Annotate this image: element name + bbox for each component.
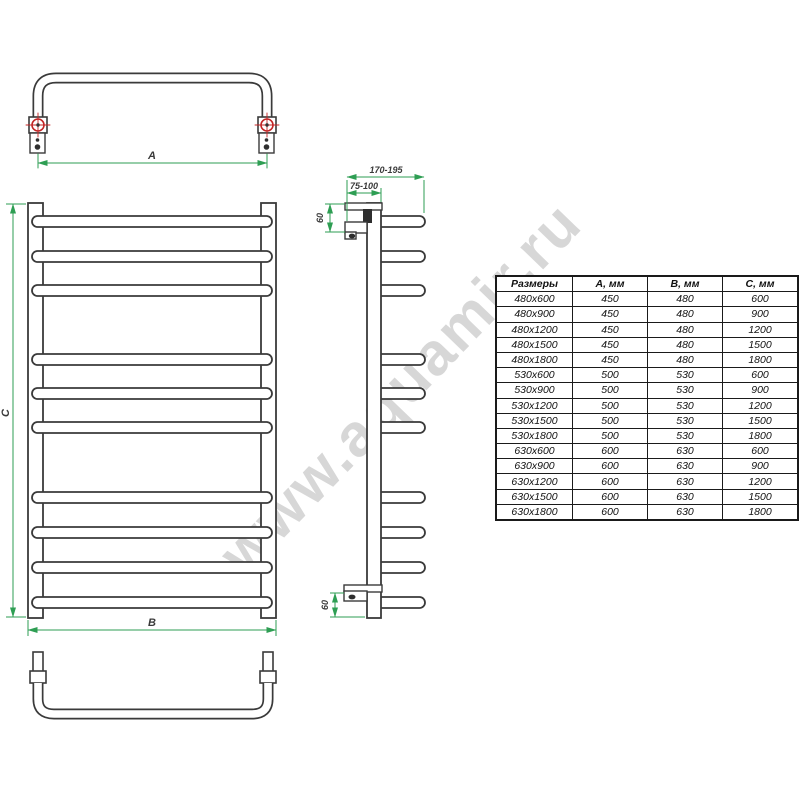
table-cell: 450: [573, 292, 648, 307]
table-cell: 600: [573, 474, 648, 489]
table-cell: 630x1500: [496, 489, 573, 504]
table-cell: 600: [573, 504, 648, 520]
table-cell: 900: [723, 383, 799, 398]
top-view-tube-fill: [38, 78, 267, 120]
table-cell: 630x600: [496, 444, 573, 459]
dimension-C-label: C: [0, 408, 12, 417]
table-cell: 530: [648, 383, 723, 398]
bottom-view-tube-outline: [38, 683, 268, 714]
table-cell: 630: [648, 474, 723, 489]
front-rung: [32, 492, 272, 503]
table-cell: 480x1800: [496, 352, 573, 367]
side-bottom-bracket-screw: [349, 595, 356, 600]
front-rung: [32, 562, 272, 573]
table-cell: 1800: [723, 504, 799, 520]
keyhole-plate-right: [259, 133, 274, 153]
size-table-header-row: Размеры А, мм В, мм С, мм: [496, 276, 798, 292]
table-row: 630x15006006301500: [496, 489, 798, 504]
bottom-collar-left: [30, 671, 46, 683]
side-bottom-bracket: [344, 591, 367, 601]
header-c-mm: С, мм: [723, 276, 799, 292]
table-row: 530x15005005301500: [496, 413, 798, 428]
side-top-bracket-screw: [349, 234, 355, 239]
keyhole-plate-left: [30, 133, 45, 153]
table-cell: 500: [573, 383, 648, 398]
size-table: Размеры А, мм В, мм С, мм 480x6004504806…: [495, 275, 799, 521]
header-b-mm: В, мм: [648, 276, 723, 292]
table-row: 530x18005005301800: [496, 428, 798, 443]
front-rung: [32, 354, 272, 365]
table-cell: 500: [573, 368, 648, 383]
table-cell: 530x1800: [496, 428, 573, 443]
table-cell: 600: [573, 444, 648, 459]
table-cell: 530: [648, 413, 723, 428]
size-table-container: Размеры А, мм В, мм С, мм 480x6004504806…: [495, 275, 799, 521]
table-cell: 600: [723, 444, 799, 459]
table-cell: 450: [573, 352, 648, 367]
size-table-body: 480x600450480600480x900450480900480x1200…: [496, 292, 798, 520]
front-rung: [32, 285, 272, 296]
table-cell: 1200: [723, 474, 799, 489]
table-cell: 1500: [723, 413, 799, 428]
table-cell: 480x600: [496, 292, 573, 307]
table-cell: 630: [648, 459, 723, 474]
table-row: 630x600600630600: [496, 444, 798, 459]
table-cell: 630x1800: [496, 504, 573, 520]
table-row: 530x12005005301200: [496, 398, 798, 413]
table-cell: 1200: [723, 398, 799, 413]
table-row: 630x18006006301800: [496, 504, 798, 520]
table-cell: 480: [648, 307, 723, 322]
table-row: 530x900500530900: [496, 383, 798, 398]
dimension-depth-range-label: 170-195: [369, 165, 403, 175]
table-cell: 630: [648, 504, 723, 520]
table-cell: 480x1200: [496, 322, 573, 337]
table-cell: 630: [648, 489, 723, 504]
table-cell: 600: [723, 292, 799, 307]
dimension-B-label: B: [148, 617, 156, 629]
table-cell: 500: [573, 398, 648, 413]
table-row: 480x15004504801500: [496, 337, 798, 352]
table-cell: 480: [648, 337, 723, 352]
table-cell: 480x900: [496, 307, 573, 322]
size-table-head: Размеры А, мм В, мм С, мм: [496, 276, 798, 292]
table-row: 480x18004504801800: [496, 352, 798, 367]
bottom-view: [30, 652, 276, 714]
table-cell: 530x900: [496, 383, 573, 398]
front-rung: [32, 422, 272, 433]
side-pipe: [367, 203, 381, 618]
table-row: 530x600500530600: [496, 368, 798, 383]
table-cell: 530x600: [496, 368, 573, 383]
dimension-bracket-range-label: 75-100: [350, 181, 378, 191]
table-cell: 480: [648, 292, 723, 307]
table-cell: 600: [573, 459, 648, 474]
table-row: 480x600450480600: [496, 292, 798, 307]
table-cell: 530x1500: [496, 413, 573, 428]
table-cell: 600: [723, 368, 799, 383]
table-cell: 530: [648, 368, 723, 383]
table-cell: 450: [573, 337, 648, 352]
front-rung: [32, 388, 272, 399]
table-cell: 1800: [723, 352, 799, 367]
table-cell: 480x1500: [496, 337, 573, 352]
bottom-stub-left: [33, 652, 43, 672]
table-cell: 480: [648, 322, 723, 337]
table-row: 480x12004504801200: [496, 322, 798, 337]
table-row: 630x12006006301200: [496, 474, 798, 489]
side-top-plate: [345, 203, 382, 210]
table-cell: 450: [573, 307, 648, 322]
dimension-A-label: A: [147, 150, 156, 162]
dimension-top-offset: [325, 204, 345, 232]
side-top-bracket-pin: [363, 209, 372, 223]
header-sizes: Размеры: [496, 276, 573, 292]
side-view: 170-195 75-100 60 60: [315, 165, 425, 618]
table-cell: 1500: [723, 337, 799, 352]
front-rung: [32, 216, 272, 227]
table-row: 630x900600630900: [496, 459, 798, 474]
dimension-bottom-offset-label: 60: [320, 600, 330, 610]
table-cell: 1800: [723, 428, 799, 443]
technical-drawing-page: { "watermark": { "text": "www.aquamir.ru…: [0, 0, 800, 800]
table-cell: 630x1200: [496, 474, 573, 489]
table-cell: 630x900: [496, 459, 573, 474]
top-view: A: [26, 78, 279, 168]
table-cell: 500: [573, 413, 648, 428]
front-left-rail: [28, 203, 43, 618]
front-rungs: [32, 216, 272, 608]
table-cell: 900: [723, 459, 799, 474]
bottom-stub-right: [263, 652, 273, 672]
front-right-rail: [261, 203, 276, 618]
header-a-mm: А, мм: [573, 276, 648, 292]
front-rung: [32, 597, 272, 608]
front-rung: [32, 251, 272, 262]
front-view: C B: [0, 203, 276, 636]
table-cell: 480: [648, 352, 723, 367]
front-rung: [32, 527, 272, 538]
table-cell: 500: [573, 428, 648, 443]
table-cell: 450: [573, 322, 648, 337]
dimension-top-offset-label: 60: [315, 213, 325, 223]
top-view-tube-outline: [38, 78, 267, 120]
table-cell: 530: [648, 398, 723, 413]
table-cell: 530x1200: [496, 398, 573, 413]
table-cell: 900: [723, 307, 799, 322]
table-cell: 600: [573, 489, 648, 504]
table-row: 480x900450480900: [496, 307, 798, 322]
table-cell: 1200: [723, 322, 799, 337]
table-cell: 630: [648, 444, 723, 459]
bottom-collar-right: [260, 671, 276, 683]
table-cell: 1500: [723, 489, 799, 504]
table-cell: 530: [648, 428, 723, 443]
